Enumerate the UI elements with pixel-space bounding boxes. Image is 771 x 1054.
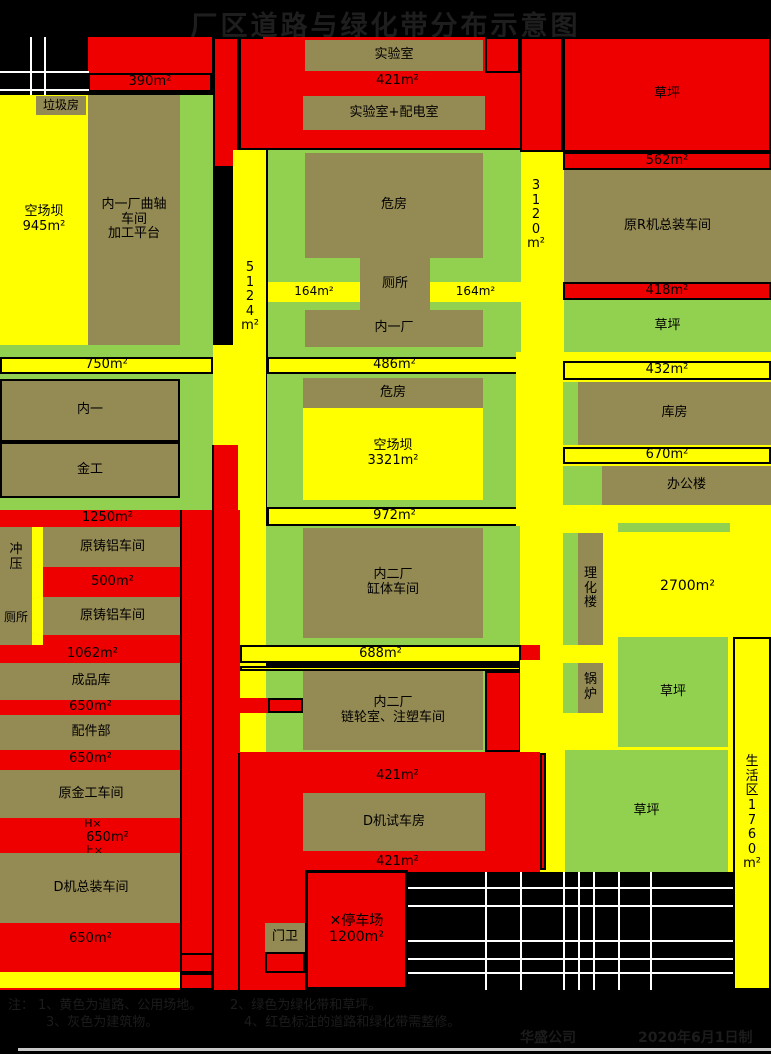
chongya-label-label: 冲 压 [9, 543, 22, 572]
footer-date: 2020年6月1日制 [638, 1027, 752, 1047]
weifang-south: 危房 [303, 378, 483, 408]
strip-164-left-label: 164m² [294, 285, 333, 298]
grid-line [408, 972, 733, 974]
road-marking-line [30, 37, 32, 95]
yard-3321-label: 空场坝 3321m² [368, 439, 419, 468]
r-assembly-workshop-label: 原R机总装车间 [624, 219, 711, 234]
green-bar-west [0, 345, 213, 357]
strip-972: 972m² [267, 507, 522, 526]
strip-418-label: 418m² [646, 284, 689, 299]
parking-lot: ✕停车场 1200m² [305, 870, 408, 990]
chongya-label: 冲 压 [4, 535, 28, 581]
weifang-north: 危房 [305, 153, 483, 258]
living-area-strip: 生 活 区 1 7 6 0 m² [733, 637, 771, 990]
yuanjingong-workshop: 原金工车间 [0, 770, 182, 818]
note-item-3: 3、灰色为建筑物。 [46, 1011, 158, 1030]
r-assembly-workshop: 原R机总装车间 [564, 170, 771, 282]
road-3120-label-label: 3 1 2 0 m² [527, 179, 545, 252]
cast-aluminum-workshop-1: 原铸铝车间 [43, 527, 182, 567]
garbage-house-label: 垃圾房 [43, 99, 79, 112]
strip-562: 562m² [563, 152, 771, 170]
text-hx-marker-label: H× [84, 818, 102, 830]
text-650-2-label: 650m² [69, 752, 112, 767]
strip-390: 390m² [88, 73, 212, 92]
text-650-1: 650m² [53, 700, 128, 715]
west-yard-label: 空场坝 945m² [23, 205, 66, 234]
green-strip-lihua [563, 533, 578, 645]
neierchang-gangti: 内二厂 缸体车间 [303, 528, 483, 638]
strip-972-label: 972m² [373, 509, 416, 524]
note-prefix: 注： [8, 994, 34, 1013]
text-2700: 2700m² [640, 578, 735, 596]
neierchang-gangti-label: 内二厂 缸体车间 [367, 568, 419, 597]
toilet-west-label-label: 厕所 [4, 611, 28, 624]
parking-lot-label: ✕停车场 1200m² [329, 914, 384, 945]
weifang-north-label: 危房 [381, 198, 407, 213]
red-col-a [213, 37, 239, 168]
neiyi-chang: 内一厂 [305, 310, 483, 347]
divider-line [212, 445, 214, 990]
red-gate-box-2 [180, 973, 213, 990]
note-item-4: 4、红色标注的道路和绿化带需整修。 [244, 1011, 460, 1030]
grid-line [408, 905, 733, 907]
toilet-mid: 厕所 [360, 258, 430, 310]
text-1062: 1062m² [45, 647, 140, 662]
boiler: 锅 炉 [578, 663, 603, 713]
text-1250-label: 1250m² [82, 511, 133, 526]
west-yard: 空场坝 945m² [0, 95, 88, 345]
strip-164-right: 164m² [430, 282, 521, 302]
text-650-1-label: 650m² [69, 700, 112, 715]
neierchang-lianlun-label: 内二厂 链轮室、注塑车间 [341, 696, 445, 725]
red-col-seg [213, 445, 238, 510]
menwei: 门卫 [265, 923, 305, 952]
lawn-ne: 草坪 [564, 300, 771, 352]
site-plan-canvas: 厂区道路与绿化带分布示意图 空场坝 945m²垃圾房内一厂曲轴 车间 加工平台3… [0, 0, 771, 1054]
lihua-building-label: 理 化 楼 [584, 567, 597, 611]
red-ne-lawn: 草坪 [563, 37, 771, 152]
green-strip-boiler [563, 663, 578, 713]
menwei-box [265, 952, 305, 973]
strip-486: 486m² [267, 357, 522, 374]
peijianbu: 配件部 [0, 715, 182, 750]
text-421-north: 421m² [340, 74, 455, 89]
neierchang-lianlun: 内二厂 链轮室、注塑车间 [303, 671, 483, 750]
strip-164-left: 164m² [268, 282, 360, 302]
road-marking-line [0, 89, 89, 91]
green-strip-west [180, 95, 213, 345]
neiyi-crankshaft-workshop: 内一厂曲轴 车间 加工平台 [88, 95, 180, 345]
road-3120-label: 3 1 2 0 m² [522, 168, 550, 263]
text-421-b-label: 421m² [376, 855, 419, 870]
grid-line [408, 958, 733, 960]
footer-company: 华盛公司 [520, 1027, 576, 1047]
peijianbu-label: 配件部 [71, 725, 110, 740]
red-col-b [239, 37, 266, 150]
d-assembly-workshop-label: D机总装车间 [53, 881, 128, 896]
d-test-house-label: D机试车房 [363, 815, 425, 830]
road-marking-line [44, 37, 46, 95]
road-5124-label: 5 1 2 4 m² [236, 250, 264, 345]
d-test-house: D机试车房 [303, 793, 485, 851]
text-2700-label: 2700m² [660, 579, 715, 595]
red-ne-left [520, 37, 563, 152]
neiyi-crankshaft-workshop-label: 内一厂曲轴 车间 加工平台 [101, 198, 166, 242]
road-5124-label-label: 5 1 2 4 m² [241, 261, 259, 334]
chengpinku: 成品库 [0, 663, 182, 700]
kufang-label: 库房 [661, 406, 687, 421]
red-box-g4 [485, 671, 521, 752]
divider-line [238, 753, 240, 990]
neiyi-chang-label: 内一厂 [374, 321, 413, 336]
strip-390-label: 390m² [129, 75, 172, 90]
yellow-sliver-west [32, 527, 43, 645]
yard-3321: 空场坝 3321m² [303, 408, 483, 500]
red-gate-box-1 [180, 953, 213, 973]
jingong-building-label: 金工 [77, 463, 103, 478]
neiyi-building: 内一 [0, 379, 180, 442]
grid-line [408, 940, 733, 942]
text-500: 500m² [75, 575, 150, 590]
green-strip-kufang [563, 382, 578, 445]
lab-label: 实验室 [374, 48, 413, 63]
text-421-a: 421m² [360, 769, 435, 784]
bottom-bar [18, 1048, 771, 1051]
strip-164-right-label: 164m² [456, 285, 495, 298]
strip-432: 432m² [563, 361, 771, 380]
text-650-4-label: 650m² [69, 932, 112, 947]
strip-562-label: 562m² [646, 154, 689, 169]
lihua-building: 理 化 楼 [578, 533, 603, 645]
strip-670: 670m² [563, 447, 771, 464]
text-1062-label: 1062m² [67, 647, 118, 662]
road-marking-line [0, 71, 89, 73]
red-bar-box [268, 698, 303, 713]
red-box-ne-lab [485, 37, 520, 73]
strip-670-label: 670m² [646, 448, 689, 463]
kufang: 库房 [578, 382, 771, 445]
text-421-a-label: 421m² [376, 769, 419, 784]
strip-418: 418m² [563, 282, 771, 300]
lawn-mid-east: 草坪 [618, 637, 728, 747]
yuanjingong-workshop-label: 原金工车间 [58, 787, 123, 802]
cast-aluminum-workshop-2-label: 原铸铝车间 [80, 609, 145, 624]
strip-750-label: 750m² [85, 358, 128, 373]
boiler-label: 锅 炉 [584, 673, 597, 702]
strip-432-label: 432m² [646, 363, 689, 378]
text-650-3: 650m² [70, 831, 145, 845]
strip-688-label: 688m² [359, 647, 402, 662]
cast-aluminum-workshop-2: 原铸铝车间 [43, 597, 182, 635]
text-1250: 1250m² [60, 511, 155, 526]
red-ne-lawn-label: 草坪 [654, 87, 680, 102]
text-421-north-label: 421m² [376, 74, 419, 89]
road-conn-west [213, 345, 240, 445]
jingong-building: 金工 [0, 442, 180, 498]
strip-688: 688m² [240, 645, 521, 663]
text-650-4: 650m² [53, 932, 128, 947]
chengpinku-label: 成品库 [71, 674, 110, 689]
toilet-mid-label: 厕所 [382, 277, 408, 292]
d-assembly-workshop: D机总装车间 [0, 853, 182, 923]
strip-750: 750m² [0, 357, 213, 374]
lawn-south-east: 草坪 [565, 750, 728, 872]
green-strip-office [563, 466, 602, 505]
red-block-nw [88, 37, 212, 73]
lawn-mid-east-label: 草坪 [660, 685, 686, 700]
lab-power-room: 实验室+配电室 [303, 96, 485, 130]
lawn-ne-label: 草坪 [654, 319, 680, 334]
lawn-south-east-label: 草坪 [633, 804, 659, 819]
green-bar-east [618, 523, 730, 532]
text-500-label: 500m² [91, 575, 134, 590]
lab-power-room-label: 实验室+配电室 [350, 106, 439, 121]
garbage-house: 垃圾房 [36, 96, 86, 115]
grid-line [408, 887, 733, 889]
office-building: 办公楼 [602, 466, 771, 505]
weifang-south-label: 危房 [380, 386, 406, 401]
toilet-west-label: 厕所 [0, 610, 32, 626]
text-650-2: 650m² [53, 752, 128, 767]
text-421-b: 421m² [360, 855, 435, 870]
living-area-strip-label: 生 活 区 1 7 6 0 m² [743, 755, 761, 871]
cast-aluminum-workshop-1-label: 原铸铝车间 [80, 540, 145, 555]
office-building-label: 办公楼 [667, 478, 706, 493]
menwei-label: 门卫 [272, 930, 298, 945]
red-sliver-se [540, 753, 546, 870]
lab: 实验室 [305, 40, 483, 71]
yellow-strip-sw [0, 972, 180, 988]
divider-line [180, 510, 182, 990]
neiyi-building-label: 内一 [77, 403, 103, 418]
strip-486-label: 486m² [373, 358, 416, 373]
